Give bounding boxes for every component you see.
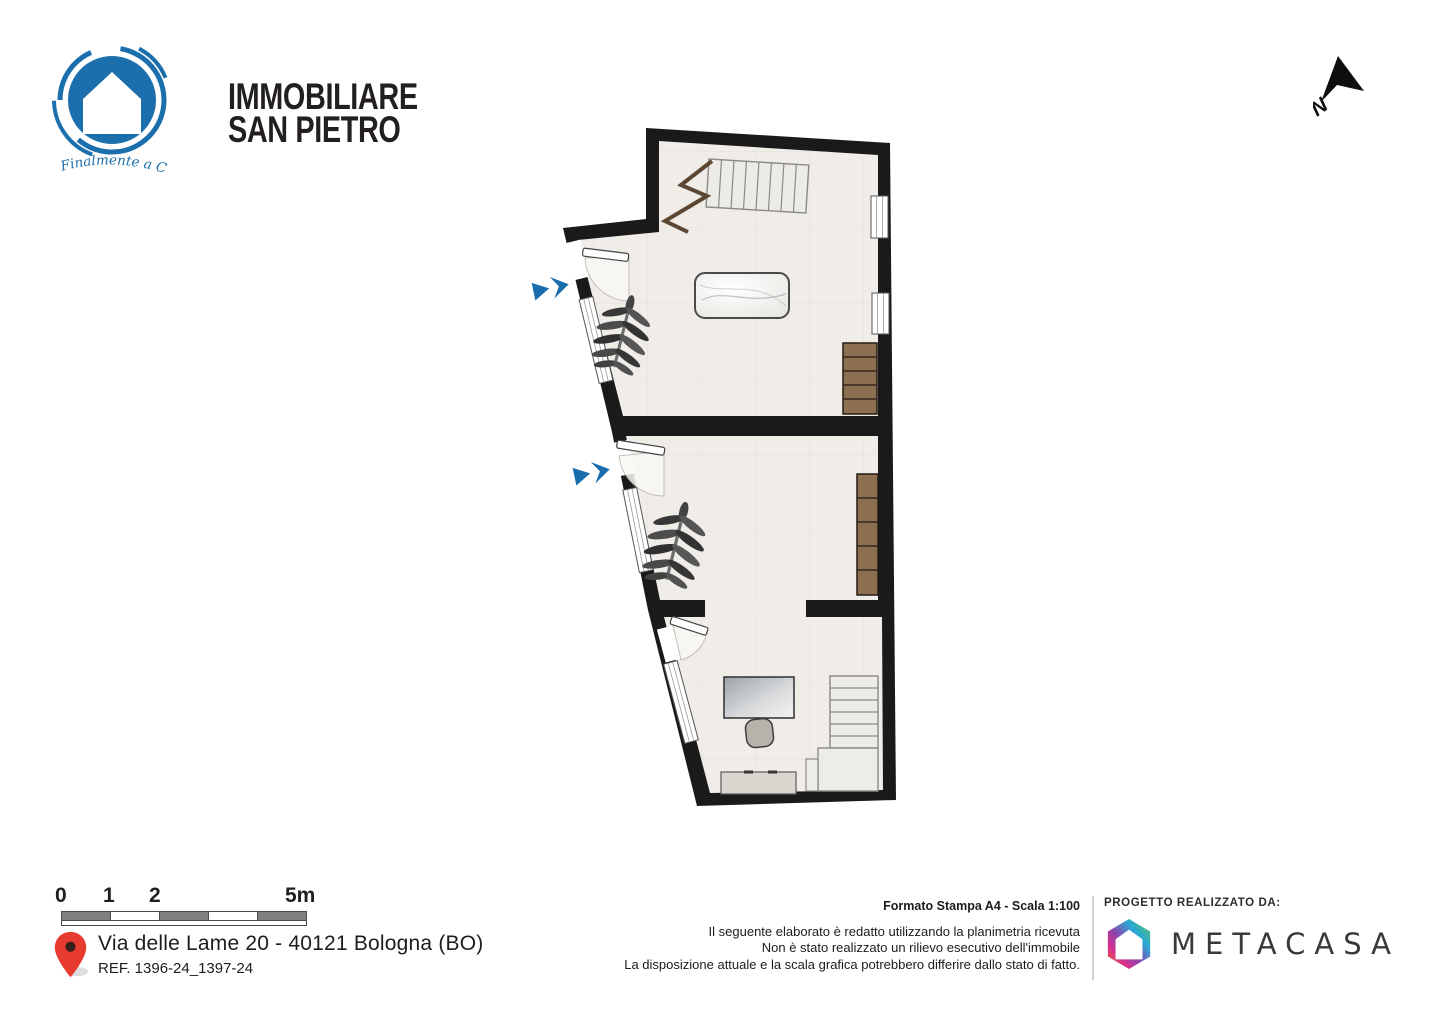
- reference-number: REF. 1396-24_1397-24: [98, 960, 483, 977]
- agency-logo-icon: Finalmente a Casa: [52, 38, 190, 188]
- scale-label-0: 0: [55, 884, 67, 908]
- scale-label-5m: 5m: [285, 884, 315, 908]
- floor-plan-page: Finalmente a Casa IMMOBILIARE SAN PIETRO…: [0, 0, 1440, 1017]
- location-pin-icon: [52, 929, 89, 981]
- print-info: Formato Stampa A4 - Scala 1:100 Il segue…: [610, 898, 1080, 973]
- scale-bar-graphic: [61, 911, 307, 926]
- kitchen-island: [695, 273, 789, 318]
- scale-label-2: 2: [149, 884, 161, 908]
- disclaimer-line-1: Il seguente elaborato è redatto utilizza…: [610, 924, 1080, 941]
- sideboard: [721, 772, 796, 794]
- entrance-arrow-icon-upper: [531, 273, 571, 302]
- entrance-arrow-icon-lower: [572, 458, 612, 487]
- north-arrow-icon: N: [1313, 54, 1377, 122]
- disclaimer-line-2: Non è stato realizzato un rilievo esecut…: [610, 940, 1080, 957]
- agency-name-line2: SAN PIETRO: [228, 113, 418, 146]
- desk: [724, 677, 794, 718]
- north-arrow-pointer: [1321, 56, 1364, 102]
- floor-plan: [520, 110, 920, 820]
- print-format-line: Formato Stampa A4 - Scala 1:100: [610, 898, 1080, 915]
- metacasa-logo-icon: [1104, 917, 1154, 971]
- scale-bar-labels: 0 1 2 5m: [61, 884, 309, 908]
- scale-bar: 0 1 2 5m: [61, 884, 309, 926]
- scale-label-1: 1: [103, 884, 115, 908]
- address-block: Via delle Lame 20 - 40121 Bologna (BO) R…: [52, 929, 483, 981]
- address-line: Via delle Lame 20 - 40121 Bologna (BO): [98, 932, 483, 956]
- metacasa-wordmark: METACASA: [1171, 927, 1400, 961]
- footer-divider: [1092, 896, 1094, 980]
- window-right-a: [871, 196, 888, 238]
- credits-block: PROGETTO REALIZZATO DA: METACASA: [1104, 897, 1400, 971]
- bookshelf-middle: [857, 474, 878, 595]
- agency-logo: Finalmente a Casa IMMOBILIARE SAN PIETRO: [52, 38, 471, 188]
- window-right-b: [872, 293, 889, 334]
- credits-heading: PROGETTO REALIZZATO DA:: [1104, 897, 1400, 909]
- doorway-opening: [705, 597, 806, 619]
- disclaimer-line-3: La disposizione attuale e la scala grafi…: [610, 957, 1080, 974]
- chair: [745, 718, 775, 749]
- staircase-upper: [706, 159, 809, 213]
- cabinet-upper: [843, 343, 877, 414]
